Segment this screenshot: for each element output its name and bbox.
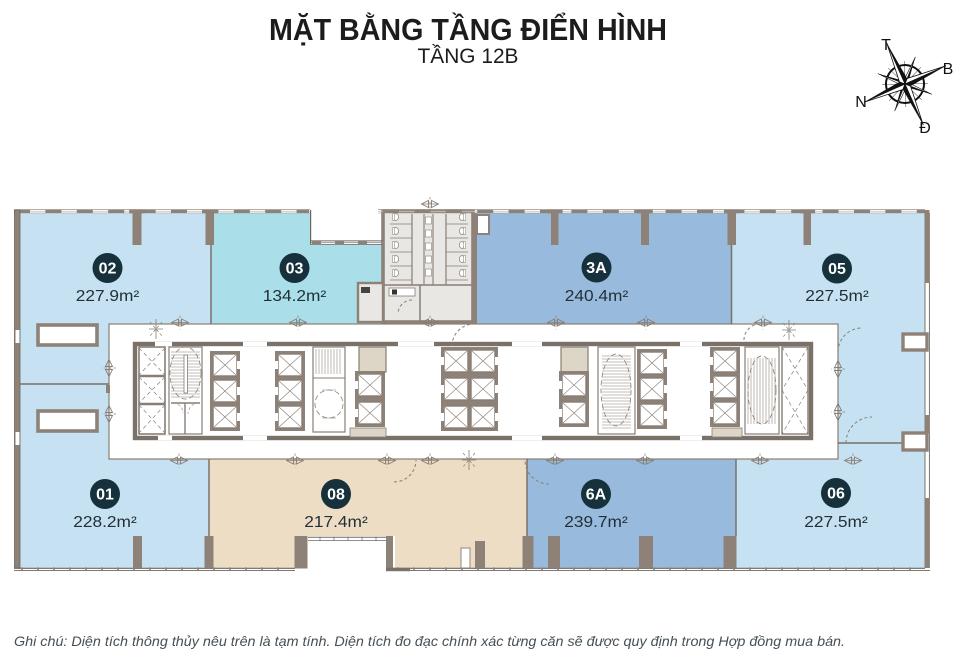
svg-text:08: 08 <box>327 487 345 504</box>
svg-text:03: 03 <box>286 261 304 278</box>
svg-text:240.4m²: 240.4m² <box>565 288 629 305</box>
svg-text:227.9m²: 227.9m² <box>76 288 140 305</box>
svg-text:227.5m²: 227.5m² <box>804 514 868 531</box>
svg-text:227.5m²: 227.5m² <box>805 288 869 305</box>
svg-text:228.2m²: 228.2m² <box>73 514 137 531</box>
svg-text:134.2m²: 134.2m² <box>263 288 327 305</box>
svg-text:6A: 6A <box>586 487 607 504</box>
svg-text:N: N <box>855 94 867 111</box>
svg-text:Đ: Đ <box>919 120 931 137</box>
svg-text:3A: 3A <box>586 260 607 277</box>
svg-text:239.7m²: 239.7m² <box>564 514 628 531</box>
svg-text:T: T <box>881 37 891 54</box>
svg-text:B: B <box>943 61 954 78</box>
svg-text:06: 06 <box>827 486 845 503</box>
svg-text:02: 02 <box>99 261 117 278</box>
svg-text:TẦNG 12B: TẦNG 12B <box>418 45 519 68</box>
svg-text:01: 01 <box>96 487 114 504</box>
svg-text:MẶT BẰNG TẦNG ĐIỂN HÌNH: MẶT BẰNG TẦNG ĐIỂN HÌNH <box>269 12 667 47</box>
svg-text:05: 05 <box>828 261 846 278</box>
svg-text:Ghi chú: Diện tích thông thủy: Ghi chú: Diện tích thông thủy nêu trên l… <box>14 633 845 649</box>
svg-text:217.4m²: 217.4m² <box>304 514 368 531</box>
